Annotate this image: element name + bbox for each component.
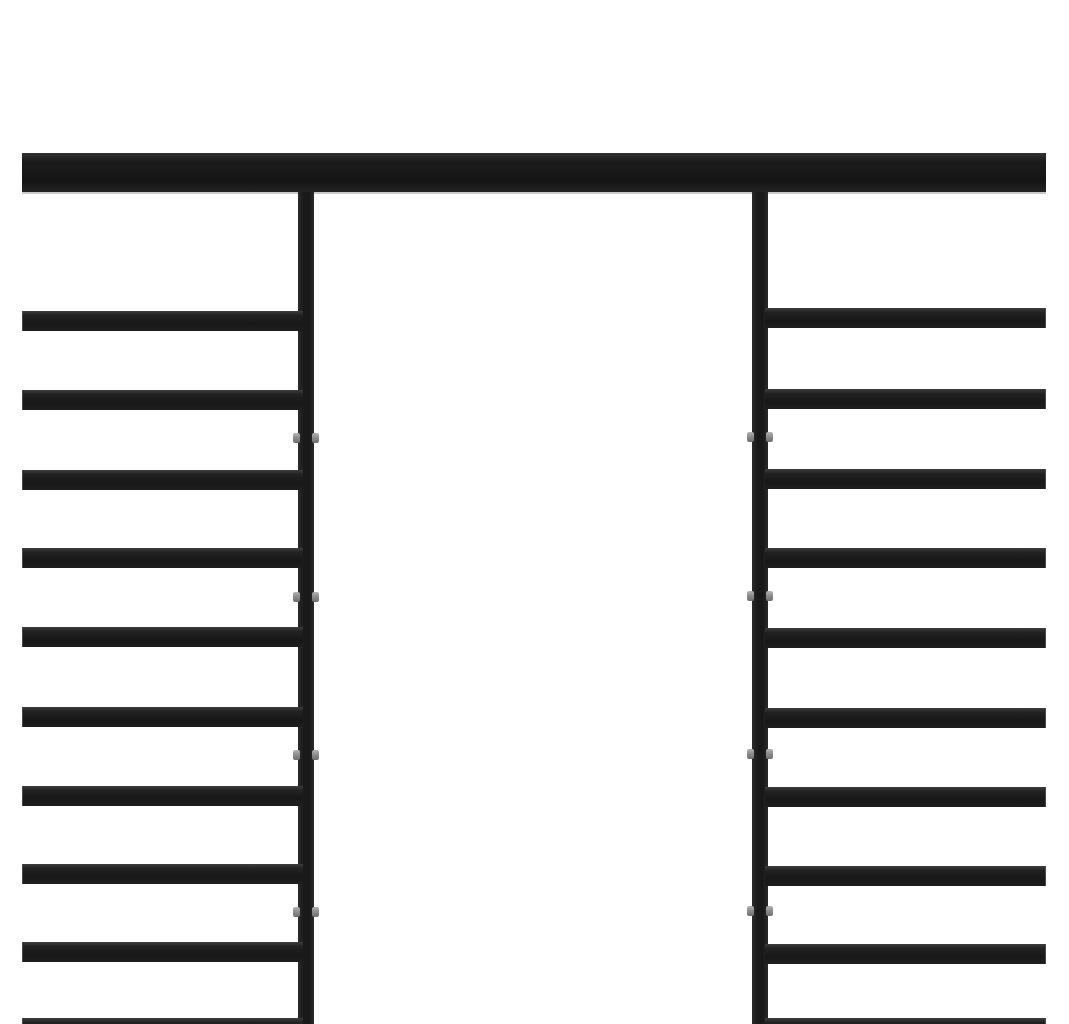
roof-slat-left [22,627,303,647]
roof-slat-right [765,787,1046,807]
roof-slat-left [22,390,303,410]
connector-bolt [293,433,300,443]
roof-slat-right [765,708,1046,728]
roof-slat-right [765,548,1046,568]
connector-bolt [766,906,773,916]
connector-bolt [312,907,319,917]
roof-slat-left [22,1018,303,1024]
roof-slat-left [22,311,303,331]
roof-slat-left [22,786,303,806]
roof-slat-right [765,469,1046,489]
connector-bolt [293,592,300,602]
roof-slat-left [22,942,303,962]
roof-slat-right [765,628,1046,648]
pergola-frame-photo: Close-up section of a black powder-coate… [0,0,1069,1024]
connector-bolt [747,749,754,759]
connector-bolt [312,750,319,760]
connector-bolt [293,907,300,917]
roof-slat-left [22,548,303,568]
roof-slat-right [765,389,1046,409]
top-beam [22,153,1046,192]
roof-slat-right [765,866,1046,886]
roof-slat-left [22,864,303,884]
connector-bolt [766,432,773,442]
connector-bolt [766,591,773,601]
roof-slat-right [765,944,1046,964]
roof-slat-right [765,308,1046,328]
roof-slat-right [765,1018,1046,1024]
connector-bolt [747,432,754,442]
connector-bolt [747,906,754,916]
connector-bolt [293,750,300,760]
connector-bolt [312,433,319,443]
connector-bolt [312,592,319,602]
roof-slat-left [22,707,303,727]
connector-bolt [766,749,773,759]
connector-bolt [747,591,754,601]
roof-slat-left [22,470,303,490]
